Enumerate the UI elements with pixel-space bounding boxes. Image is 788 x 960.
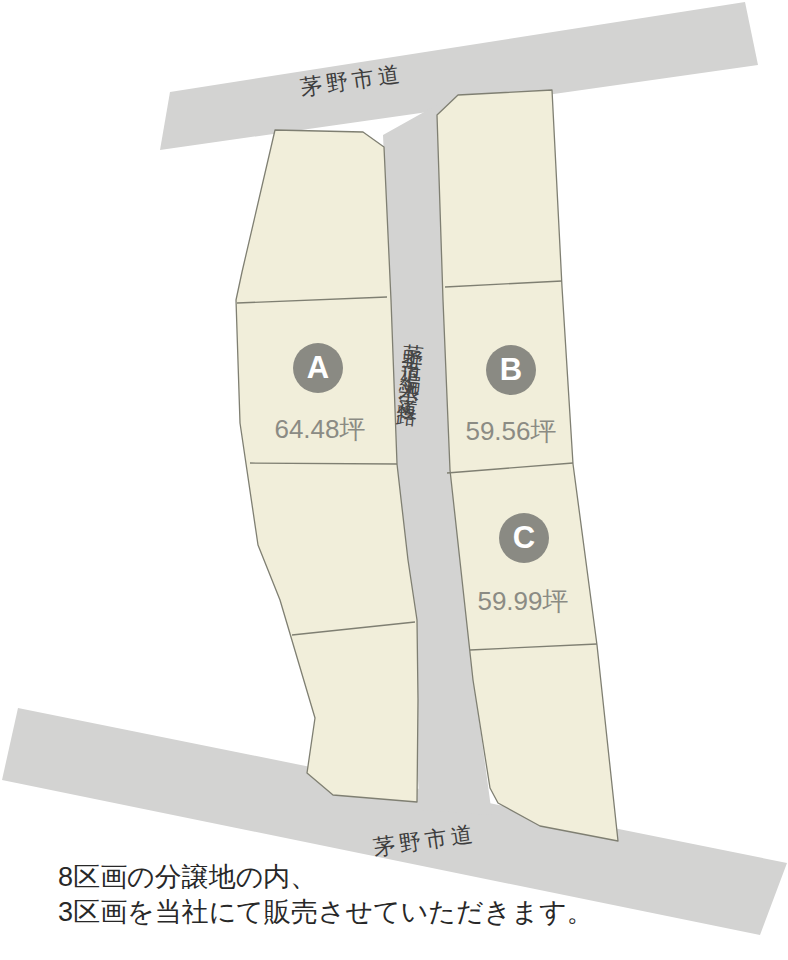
plot-a-badge: A (293, 343, 343, 393)
plot-b-area: 59.56坪 (431, 414, 591, 449)
plot-b-badge: B (486, 345, 536, 395)
caption: 8区画の分譲地の内、 3区画を当社にて販売させていただきます。 (58, 860, 594, 930)
caption-line-1: 8区画の分譲地の内、 (58, 860, 594, 895)
caption-line-2: 3区画を当社にて販売させていただきます。 (58, 895, 594, 930)
plot-c-badge: C (499, 513, 549, 563)
plot-map (0, 0, 788, 960)
site-plan: 茅野市道 茅野市道編入予定道路 茅野市道 A 64.48坪 B 59.56坪 C… (0, 0, 788, 960)
plot-a-area: 64.48坪 (240, 412, 400, 447)
plot-c-area: 59.99坪 (443, 584, 603, 619)
